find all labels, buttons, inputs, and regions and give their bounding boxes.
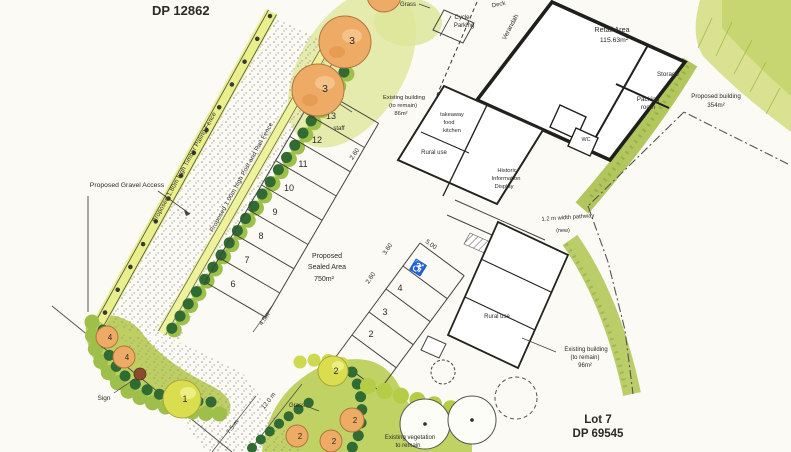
storage-label: Storage [657,71,680,78]
grass-bottom-label: Grass [289,403,305,409]
takeaway-label: takeaway [440,112,464,118]
bay-number: 12 [312,135,322,145]
veg-label2: to remain [395,443,420,449]
existing-96-label: Existing building [564,347,607,353]
existing-86-label2: (to remain) [389,103,417,109]
existing-96-size: 96m² [578,363,592,369]
bay-number: 2 [368,329,373,339]
bay-number: 6 [230,279,235,289]
dim-5.00-right: 5.00 [424,238,438,251]
bay-number: 10 [284,183,294,193]
dim-2.60-right: 2.60 [364,271,377,285]
sealed-area-label: Proposed [312,253,342,260]
tree-number: 2 [333,366,338,376]
bay-number: 9 [272,207,277,217]
historic-label2: Information [492,176,521,182]
existing-86-size: 86m² [394,111,407,117]
takeaway-label2: food [444,120,455,126]
staff-label: staff [333,126,345,132]
verandah-label: Verandah [501,13,520,41]
proposed-building-label: Proposed building 354m² [691,93,741,109]
tree-number: 1 [182,394,187,404]
retail-area-label: Retail Area [594,25,629,34]
tree-number: 3 [349,35,355,47]
deck-label: Deck [491,0,507,9]
retail-area-size: 115.63m² [600,37,629,44]
bay-number: 3 [382,307,387,317]
bay-number: 11 [298,159,307,169]
dp-bottom-title: DP 69545 [573,428,625,440]
tree-number: 3 [322,83,328,95]
cycle-parking-label2: Parking [454,23,474,29]
tree-number: 2 [332,437,337,446]
rural-use-bottom-label: Rural use [484,314,510,320]
historic-label: Historic [497,168,516,174]
proposed-building-size: 354m² [707,102,725,109]
wc-label: WC [582,137,591,143]
lot-title: Lot 7 [584,414,611,426]
bay-number: 8 [258,231,263,241]
site-plan-svg: Proposed 1.80m high Timber Paling Fence … [0,0,791,452]
tree-number: 2 [298,432,303,441]
pathway-note: (new) [556,228,570,234]
cycle-parking-label: Cycle [454,15,470,21]
tree-number: 2 [353,416,358,425]
sealed-area-label2: Sealed Area [308,264,346,271]
rural-use-top-label: Rural use [421,150,447,156]
pathway-label: 1.2 m width pathway [541,213,594,223]
veg-label: Existing vegetation [385,435,435,441]
gravel-access-label: Proposed Gravel Access [90,182,165,189]
bay-number: 7 [244,255,249,265]
takeaway-label3: kitchen [443,128,461,134]
dim-2.60-left: 2.60 [348,147,361,161]
packing-room-label2: room [641,104,655,111]
existing-96-label2: (to remain) [570,355,599,361]
sealed-area-size: 750m² [314,276,335,283]
sign-label: Sign [97,395,110,402]
grass-top-label: Grass [400,2,416,8]
tree-number: 4 [125,353,130,362]
disabled-parking-icon: ♿ [408,258,428,278]
tree-number: 4 [108,333,113,342]
packing-room-label: Packing [637,96,660,103]
historic-label3: Display [494,184,513,190]
bay-number: 4 [397,283,402,293]
site-plan-drawing: Proposed 1.80m high Timber Paling Fence … [0,0,791,452]
existing-86-label: Existing building [383,95,425,101]
dim-3.60: 3.60 [381,242,394,256]
proposed-building-line1: Proposed building [691,93,741,100]
dp-top-title: DP 12862 [152,3,210,18]
